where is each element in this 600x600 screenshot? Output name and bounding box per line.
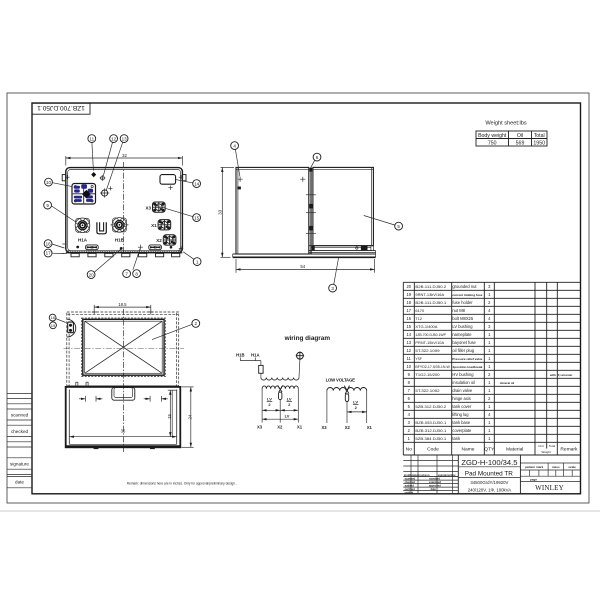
svg-text:18.5: 18.5 [118,302,127,307]
svg-text:Total: Total [549,444,556,448]
svg-text:10: 10 [407,364,412,369]
svg-text:tank cover: tank cover [452,404,472,409]
svg-text:12: 12 [111,136,117,141]
svg-text:569: 569 [516,141,525,147]
svg-text:signature/date: signature/date [438,473,456,477]
svg-text:BZB.312.DJ50.1: BZB.312.DJ50.1 [415,429,446,433]
svg-text:lifting lug: lifting lug [452,412,469,417]
svg-text:Remark: dimensions here are i: Remark: dimensions here are in inches. O… [127,482,237,486]
svg-text:LV: LV [353,400,358,405]
svg-text:240/120V, 1Φ, 100kVA: 240/120V, 1Φ, 100kVA [468,487,511,492]
svg-text:4position loadbreak: 4position loadbreak [452,365,482,369]
svg-text:checked: checked [11,429,29,434]
svg-text:H1A: H1A [78,237,88,242]
svg-text:1ZB.700.DJ50.1WP: 1ZB.700.DJ50.1WP [415,333,446,337]
svg-text:signature: signature [10,461,29,466]
svg-text:B2B.111.DJ50.1: B2B.111.DJ50.1 [415,301,446,305]
svg-text:11: 11 [407,356,412,361]
svg-text:Weight: Weight [542,450,551,454]
svg-text:1ZB.700.DJ50.1: 1ZB.700.DJ50.1 [37,104,85,111]
svg-text:13: 13 [122,136,128,141]
svg-text:33: 33 [218,209,223,214]
svg-text:mineral oil: mineral oil [500,381,515,385]
svg-text:with (1) arrester: with (1) arrester [549,373,573,377]
svg-text:14: 14 [407,332,412,337]
svg-text:16: 16 [46,241,52,246]
svg-text:T12: T12 [415,317,422,321]
svg-text:Weight sheet:lbs: Weight sheet:lbs [485,121,526,127]
svg-text:24: 24 [187,414,192,419]
svg-text:QTY: QTY [484,447,495,453]
svg-text:tank base: tank base [452,420,470,425]
svg-text:date: date [15,480,24,485]
svg-text:5T.322.1009: 5T.322.1009 [415,349,439,353]
svg-text:Pad Mounted TR: Pad Mounted TR [465,471,514,478]
svg-text:X2: X2 [156,238,162,243]
svg-text:H1B: H1B [236,352,244,357]
svg-text:examined: examined [429,480,441,484]
svg-text:X2: X2 [277,424,283,429]
svg-text:5T.322.1002: 5T.322.1002 [415,389,439,393]
svg-text:hinge axis: hinge axis [452,396,470,401]
svg-text:page: page [530,478,537,482]
svg-text:17: 17 [407,308,412,313]
svg-text:WINLEY: WINLEY [535,484,564,492]
svg-text:17: 17 [46,251,52,256]
svg-text:modification: modification [404,473,420,477]
svg-text:19: 19 [407,292,412,297]
svg-text:scanned: scanned [11,413,29,418]
svg-text:BZB.053.DJ50.1: BZB.053.DJ50.1 [415,421,446,425]
svg-text:wiring diagram: wiring diagram [284,335,331,342]
svg-text:LV bushing: LV bushing [452,324,473,329]
svg-text:X1: X1 [367,425,373,430]
svg-text:X3: X3 [145,205,151,210]
svg-text:audited: audited [405,484,415,488]
svg-text:nameplate: nameplate [452,332,472,337]
svg-text:current limiting fuse: current limiting fuse [452,293,482,297]
svg-text:32: 32 [122,153,127,158]
svg-text:LV: LV [287,396,292,401]
svg-text:Unit: Unit [538,444,544,448]
svg-text:34500GrdY/19920V: 34500GrdY/19920V [470,480,508,485]
svg-text:Pressure relief valve: Pressure relief valve [452,357,482,361]
svg-text:LOW VOLTAGE: LOW VOLTAGE [326,378,355,383]
svg-text:H1B: H1B [115,237,125,242]
svg-text:12: 12 [407,348,412,353]
svg-text:BFYD2-17.5/35-1N-W: BFYD2-17.5/35-1N-W [415,365,450,369]
svg-text:tank: tank [452,436,461,441]
svg-text:Material: Material [506,447,523,453]
svg-text:Oil: Oil [517,133,523,139]
svg-text:X3: X3 [257,424,263,429]
svg-text:18: 18 [50,315,55,320]
svg-text:fuse holder: fuse holder [452,300,473,305]
svg-text:nut M8: nut M8 [452,308,465,313]
svg-text:X1: X1 [297,424,303,429]
svg-text:1950: 1950 [533,141,545,147]
svg-text:approved: approved [429,484,441,488]
svg-text:Total: Total [534,133,545,139]
svg-text:ratified: ratified [405,490,414,494]
svg-text:HV bushing: HV bushing [452,372,474,377]
svg-text:6170: 6170 [415,309,424,313]
svg-text:T1G2-15/200: T1G2-15/200 [415,373,439,377]
svg-text:19: 19 [51,323,56,328]
svg-text:Code: Code [427,447,439,453]
svg-text:X3: X3 [321,425,327,430]
svg-text:X1: X1 [151,223,157,228]
svg-text:5ZB.312.DJ50.2: 5ZB.312.DJ50.2 [415,405,446,409]
svg-text:ZGD-H-100/34.5: ZGD-H-100/34.5 [461,458,517,467]
svg-text:14: 14 [194,181,200,186]
svg-text:insulation oil: insulation oil [452,380,475,385]
svg-text:11: 11 [89,136,94,141]
svg-text:revision: revision [420,473,430,477]
svg-text:certified: certified [405,487,416,491]
svg-text:Remark: Remark [560,447,578,453]
svg-text:Name: Name [461,447,474,453]
svg-text:15: 15 [407,324,412,329]
svg-text:date: date [431,487,437,491]
svg-text:5ZB.384.DJ50.1: 5ZB.384.DJ50.1 [415,437,446,441]
svg-text:750: 750 [488,141,497,147]
svg-text:grounded nut: grounded nut [452,284,477,289]
svg-text:15: 15 [194,215,200,220]
svg-text:54: 54 [300,264,305,269]
svg-text:mass: mass [552,465,560,469]
svg-text:coverplate: coverplate [452,428,472,433]
svg-text:H1A: H1A [251,352,259,357]
svg-text:scanned: scanned [405,477,416,481]
svg-text:16: 16 [407,316,412,321]
svg-text:20: 20 [89,272,95,277]
svg-text:LV: LV [285,414,290,419]
svg-text:20: 20 [407,284,412,289]
svg-text:No: No [406,447,413,453]
svg-text:YSF: YSF [415,357,422,361]
svg-text:9RNT-13kV/16A: 9RNT-13kV/16A [415,293,444,297]
svg-text:scale: scale [568,465,576,469]
svg-text:36: 36 [121,428,126,433]
svg-text:standard: standard [429,477,440,481]
svg-text:13: 13 [407,340,412,345]
svg-text:checked: checked [405,480,416,484]
svg-text:X2: X2 [345,425,351,430]
svg-text:Body weight: Body weight [478,133,507,139]
svg-text:bayonet fuse: bayonet fuse [452,340,476,345]
svg-text:XTG-1/400A: XTG-1/400A [415,325,437,329]
svg-text:18: 18 [407,300,412,305]
svg-text:PRNT-15kV/10A: PRNT-15kV/10A [415,341,444,345]
svg-text:pattern mark: pattern mark [525,465,544,469]
svg-text:15: 15 [167,414,172,419]
svg-text:drain valve: drain valve [452,388,473,393]
svg-text:B2B.111.DJ50.2: B2B.111.DJ50.2 [415,285,446,289]
svg-text:LV: LV [267,396,272,401]
svg-text:oil filler plug: oil filler plug [452,348,474,353]
svg-text:bolt M8X25: bolt M8X25 [452,316,473,321]
svg-text:10: 10 [46,180,52,185]
